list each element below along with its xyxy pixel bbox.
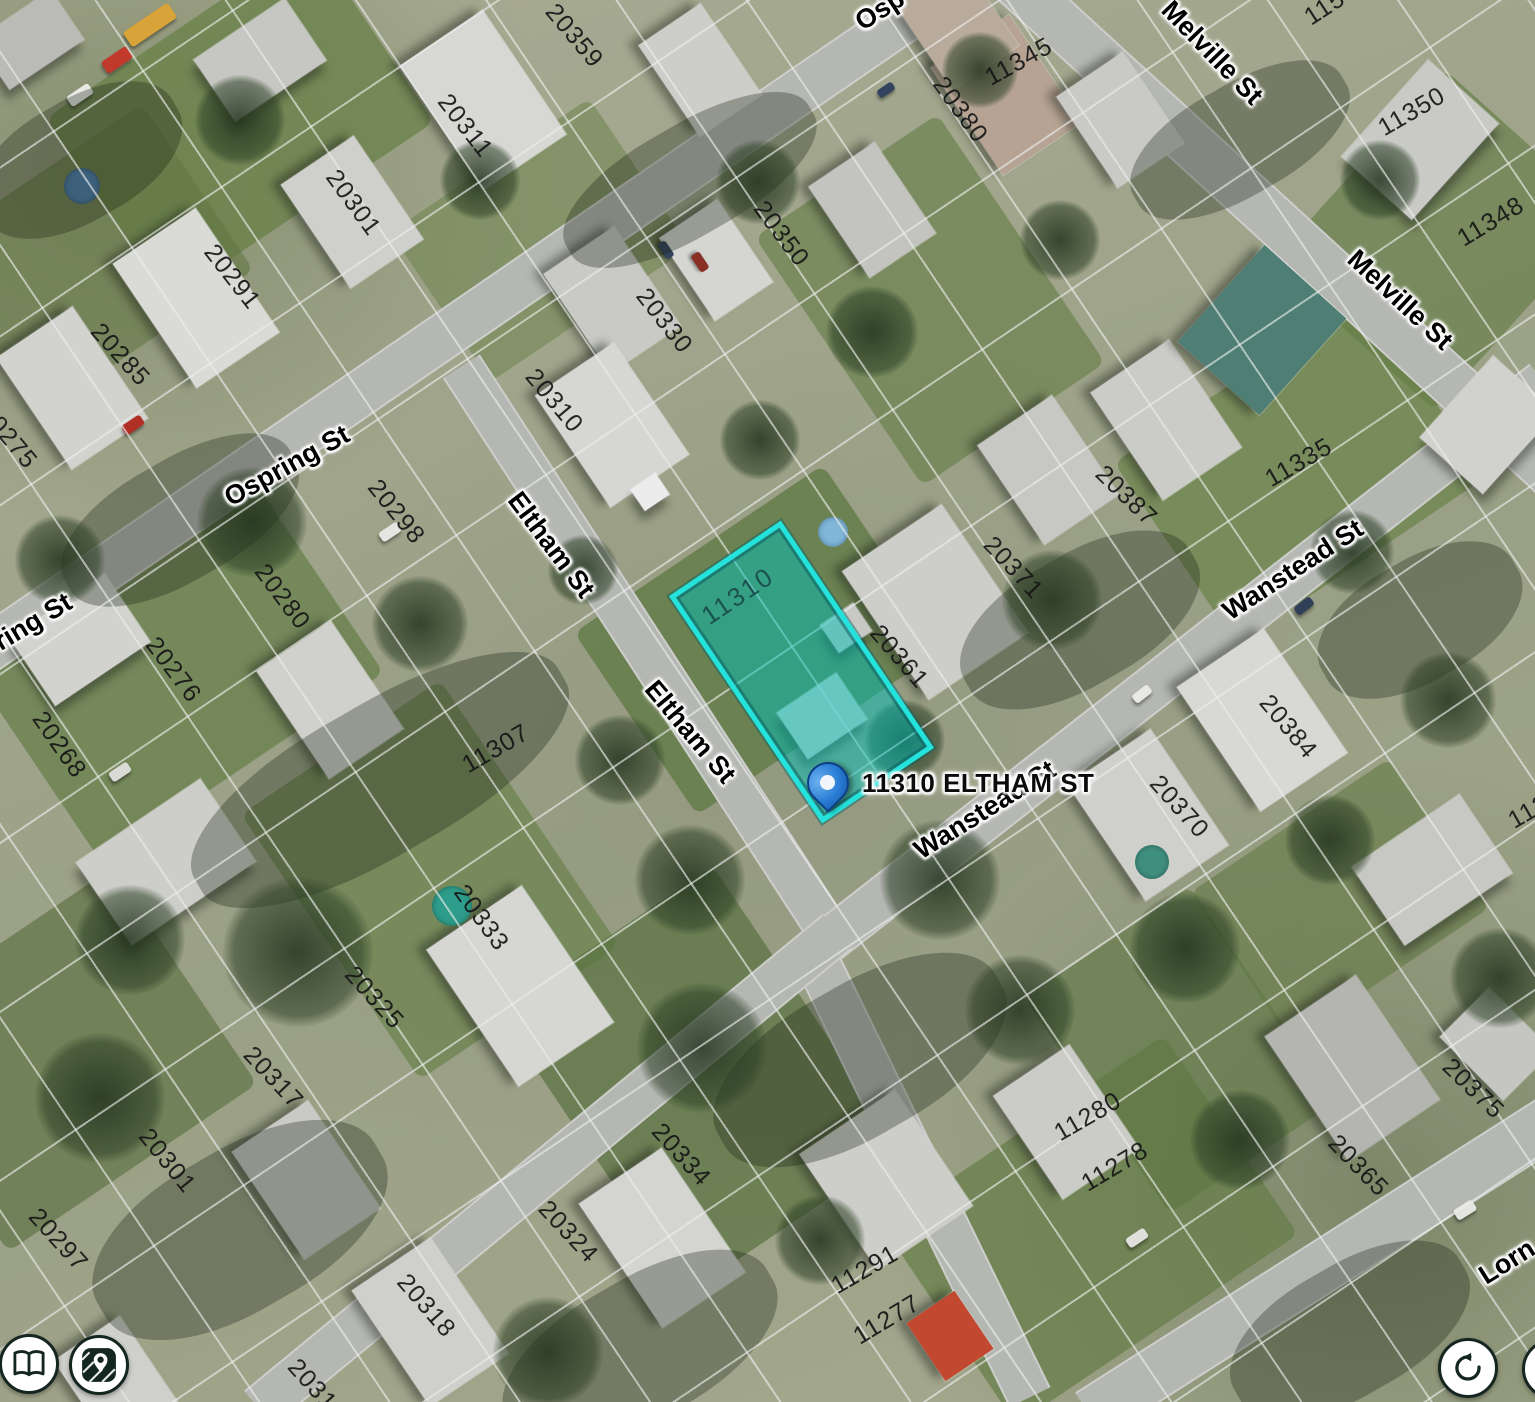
tree-canopy xyxy=(1130,893,1240,1003)
tree-canopy xyxy=(637,983,767,1113)
tree-canopy xyxy=(1400,652,1496,748)
selected-address-label: 11310 ELTHAM ST xyxy=(862,768,1094,799)
tree-canopy xyxy=(1310,510,1394,594)
tree-canopy xyxy=(197,467,307,577)
tree-canopy xyxy=(720,400,800,480)
map-canvas[interactable]: 2035920311203012029120285202752035020380… xyxy=(0,0,1535,1402)
pool xyxy=(432,886,472,926)
tree-canopy xyxy=(826,286,918,378)
legend-button[interactable] xyxy=(0,1334,59,1394)
vehicle xyxy=(876,81,896,99)
tree-canopy xyxy=(1285,795,1375,885)
tree-canopy xyxy=(716,140,800,224)
tree-canopy xyxy=(548,535,618,605)
tree-canopy xyxy=(35,1033,165,1163)
rotate-counterclockwise-icon xyxy=(1449,1349,1487,1387)
building-roof xyxy=(0,0,84,90)
map-pin-hole xyxy=(820,775,835,790)
tree-canopy xyxy=(965,955,1075,1065)
pool xyxy=(1135,845,1169,879)
tree-canopy xyxy=(1020,200,1100,280)
tree-canopy xyxy=(440,140,520,220)
tree-canopy xyxy=(15,515,105,605)
selected-parcel-number: 11310 xyxy=(696,561,780,632)
basemap-toggle-button[interactable] xyxy=(69,1335,129,1395)
tree-canopy xyxy=(775,1195,865,1285)
map-pin[interactable] xyxy=(806,762,850,832)
tree-canopy xyxy=(195,75,285,165)
tree-canopy xyxy=(1340,140,1420,220)
tree-canopy xyxy=(942,32,1018,108)
map-layers-pin-icon xyxy=(80,1346,118,1384)
tree-canopy xyxy=(493,1297,603,1402)
open-book-icon xyxy=(11,1348,47,1380)
tree-canopy xyxy=(223,877,373,1027)
vehicle xyxy=(378,521,402,542)
building-roof xyxy=(351,1237,508,1402)
tree-canopy xyxy=(75,885,185,995)
tree-canopy xyxy=(880,820,1000,940)
tree-canopy xyxy=(1190,1090,1290,1190)
reset-rotation-button[interactable] xyxy=(1438,1338,1498,1398)
tree-canopy xyxy=(575,715,665,805)
tree-canopy xyxy=(635,825,745,935)
pool xyxy=(818,517,848,547)
tree-canopy xyxy=(372,576,468,672)
tree-canopy xyxy=(1002,550,1102,650)
